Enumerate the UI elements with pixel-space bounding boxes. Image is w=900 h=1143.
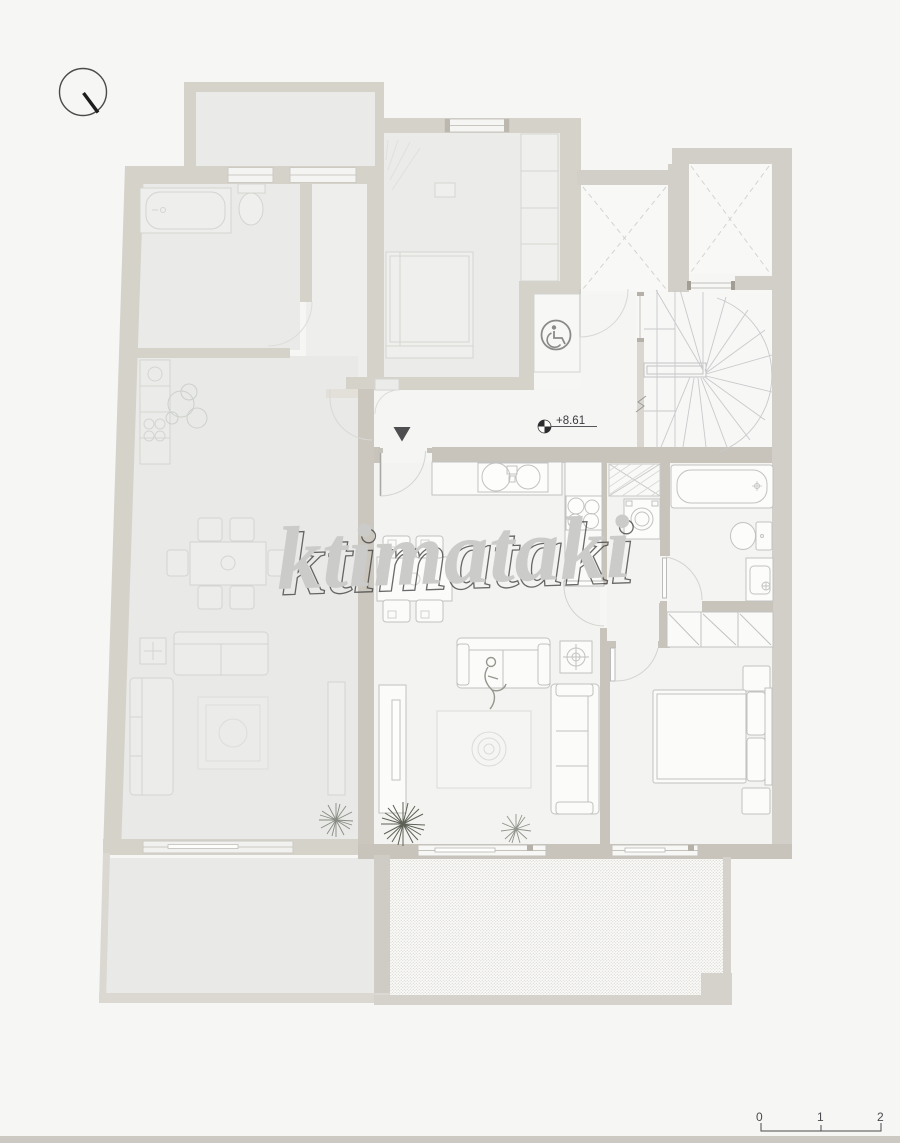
svg-text:+8.61: +8.61 (556, 415, 585, 427)
svg-text:ktimataki: ktimataki (275, 498, 632, 609)
svg-text:0: 0 (756, 1110, 763, 1124)
svg-text:2: 2 (877, 1110, 884, 1124)
svg-text:1: 1 (817, 1110, 824, 1124)
